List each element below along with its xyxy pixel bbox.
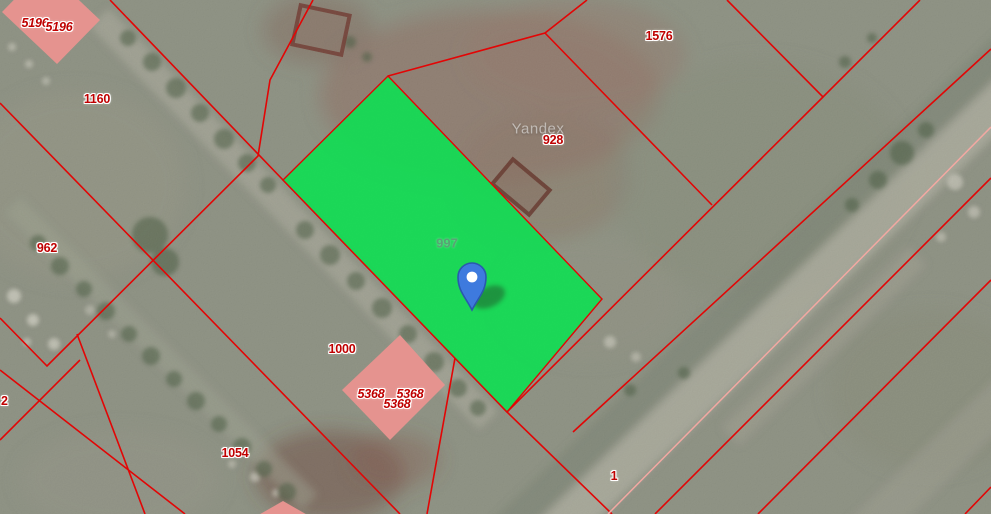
map-canvas[interactable]: 5196 5196 1160 962 2 1576 928 997 1000 5… (0, 0, 991, 514)
pin-center-dot (467, 272, 478, 283)
satellite-map-layer (0, 0, 991, 514)
